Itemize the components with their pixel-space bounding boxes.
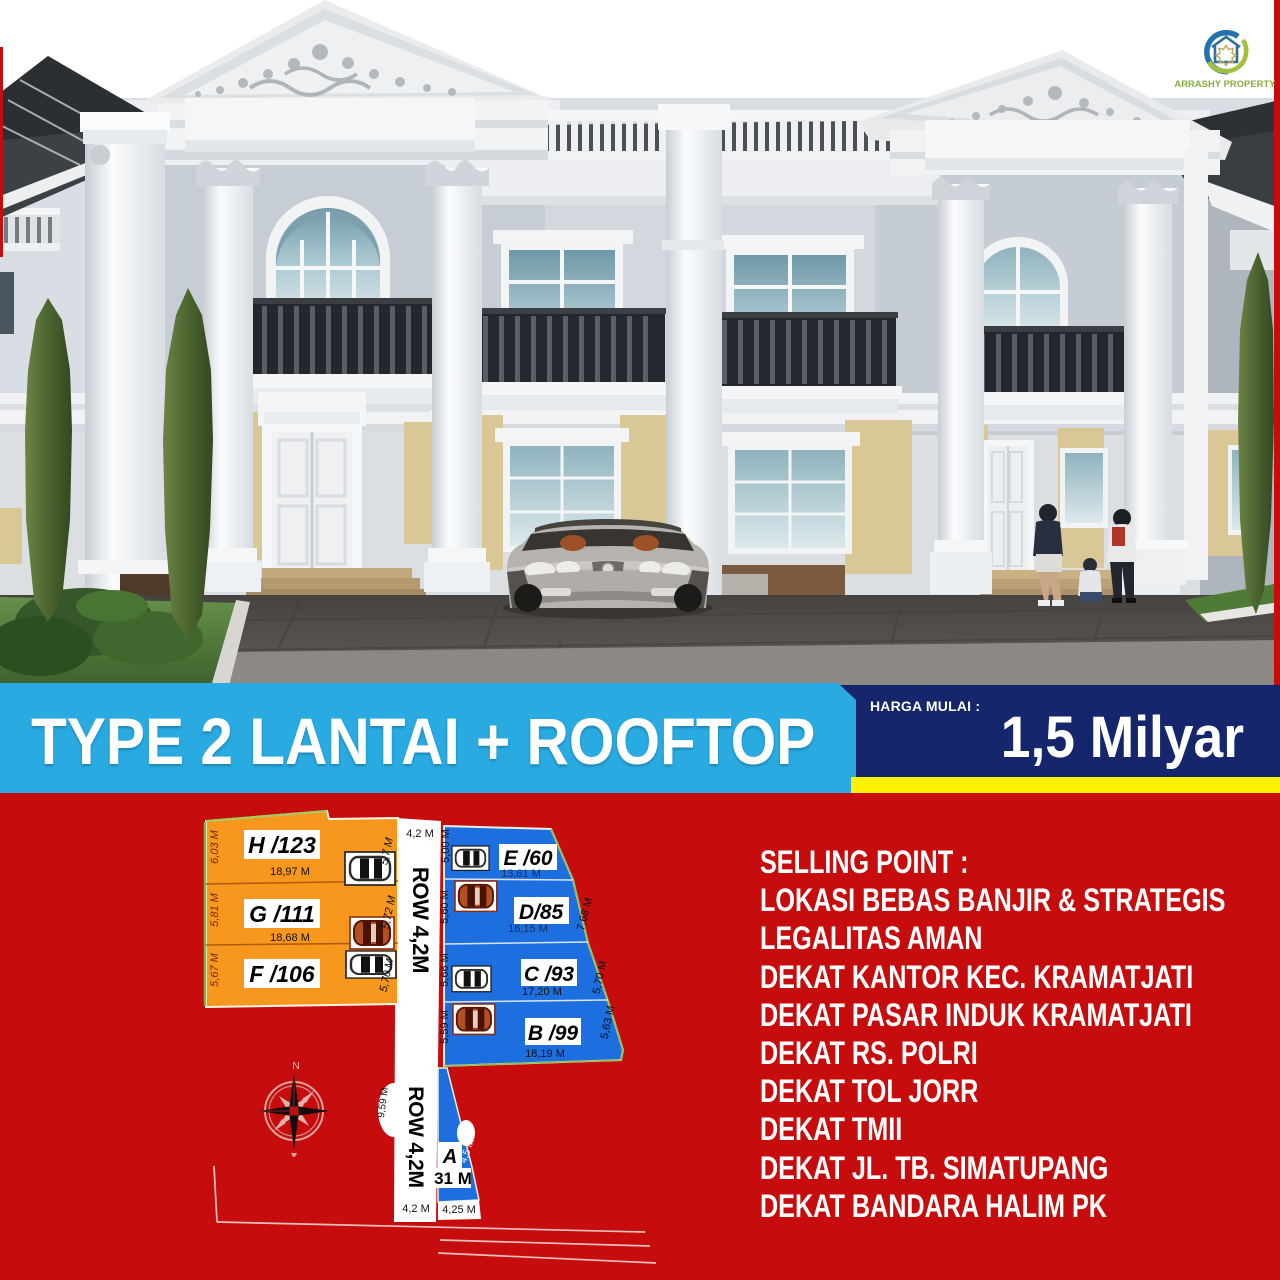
- svg-text:4,25 M: 4,25 M: [442, 1204, 476, 1216]
- svg-text:C /93: C /93: [524, 963, 575, 986]
- svg-text:5,59 M: 5,59 M: [439, 1010, 451, 1044]
- svg-text:18,19 M: 18,19 M: [525, 1048, 565, 1060]
- svg-text:G /111: G /111: [249, 901, 315, 927]
- svg-text:ROW 4,2M: ROW 4,2M: [408, 867, 433, 973]
- svg-text:A: A: [442, 1146, 457, 1168]
- svg-text:5,60 M: 5,60 M: [439, 890, 451, 924]
- svg-text:5,00 M: 5,00 M: [440, 829, 452, 863]
- svg-text:N: N: [292, 1061, 299, 1072]
- svg-text:4,2 M: 4,2 M: [406, 828, 434, 840]
- svg-text:31 M: 31 M: [434, 1169, 472, 1188]
- svg-text:ARRASHY PROPERTY: ARRASHY PROPERTY: [1174, 79, 1276, 89]
- svg-text:D/85: D/85: [519, 901, 564, 924]
- svg-text:5,66 M: 5,66 M: [439, 953, 451, 987]
- svg-text:F /106: F /106: [249, 961, 314, 987]
- svg-text:6,03 M: 6,03 M: [209, 829, 221, 863]
- svg-text:18,97 M: 18,97 M: [270, 866, 310, 878]
- svg-text:4,2 M: 4,2 M: [402, 1203, 430, 1215]
- svg-text:5,67 M: 5,67 M: [209, 952, 221, 986]
- svg-text:18,68 M: 18,68 M: [270, 932, 310, 944]
- svg-text:13,61 M: 13,61 M: [501, 868, 541, 880]
- svg-text:E /60: E /60: [503, 847, 552, 870]
- svg-text:ROW 4,2M: ROW 4,2M: [404, 1086, 427, 1187]
- svg-text:16,15 M: 16,15 M: [508, 923, 548, 935]
- svg-text:H /123: H /123: [248, 832, 316, 858]
- svg-text:17,20 M: 17,20 M: [522, 986, 562, 998]
- svg-text:B /99: B /99: [528, 1022, 579, 1045]
- svg-text:5,81 M: 5,81 M: [209, 892, 221, 926]
